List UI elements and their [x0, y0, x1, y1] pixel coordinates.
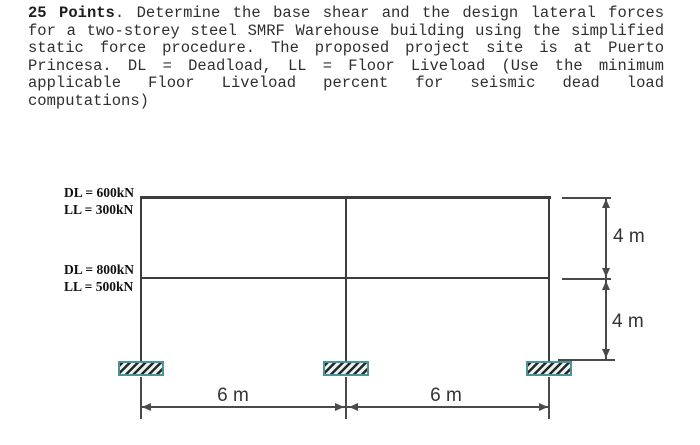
column-left	[140, 196, 142, 376]
fixed-support-left	[118, 361, 164, 376]
floor-live-load-label: LL = 500kN	[64, 278, 134, 295]
lower-storey-height-label: 4 m	[612, 312, 644, 332]
problem-line: applicable Floor Liveload percent for se…	[28, 75, 664, 93]
arrowhead-left-icon	[142, 403, 151, 411]
problem-line: computations)	[28, 93, 664, 111]
arrowhead-right-icon	[335, 403, 344, 411]
arrowhead-down-icon	[602, 268, 610, 277]
right-bay-width-label: 6 m	[421, 386, 471, 406]
dim-tick-floor	[562, 278, 611, 280]
roof-dead-load-label: DL = 600kN	[64, 184, 134, 201]
roof-load-labels: DL = 600kN LL = 300kN	[64, 184, 134, 218]
arrowhead-up-icon	[602, 281, 610, 290]
storey-dimension-line	[605, 199, 607, 359]
column-right	[548, 196, 550, 376]
arrowhead-left-icon	[349, 403, 358, 411]
problem-line: static force procedure. The proposed pro…	[28, 40, 664, 58]
column-middle	[345, 196, 347, 376]
arrowhead-right-icon	[539, 403, 548, 411]
witness-line-right	[548, 377, 550, 419]
problem-statement: 25 Points. Determine the base shear and …	[28, 5, 664, 110]
problem-line: 25 Points. Determine the base shear and …	[28, 5, 664, 23]
fixed-support-middle	[323, 361, 369, 376]
bay-dimension-line-left	[142, 406, 345, 408]
problem-line: Princesa. DL = Deadload, LL = Floor Live…	[28, 58, 664, 76]
upper-storey-height-label: 4 m	[613, 227, 645, 247]
witness-line-middle	[345, 377, 347, 419]
left-bay-width-label: 6 m	[208, 386, 258, 406]
arrowhead-down-icon	[602, 349, 610, 358]
page: 25 Points. Determine the base shear and …	[0, 0, 700, 445]
bay-dimension-line-right	[347, 406, 548, 408]
points-heading: 25 Points	[28, 4, 115, 22]
witness-line-left	[140, 377, 142, 419]
dim-tick-base	[558, 359, 615, 361]
roof-live-load-label: LL = 300kN	[64, 201, 134, 218]
fixed-support-right	[526, 361, 572, 376]
problem-line: for a two-storey steel SMRF Warehouse bu…	[28, 23, 664, 41]
problem-line-1-rest: . Determine the base shear and the desig…	[115, 4, 664, 22]
floor-dead-load-label: DL = 800kN	[64, 261, 134, 278]
arrowhead-up-icon	[602, 199, 610, 208]
floor-load-labels: DL = 800kN LL = 500kN	[64, 261, 134, 295]
